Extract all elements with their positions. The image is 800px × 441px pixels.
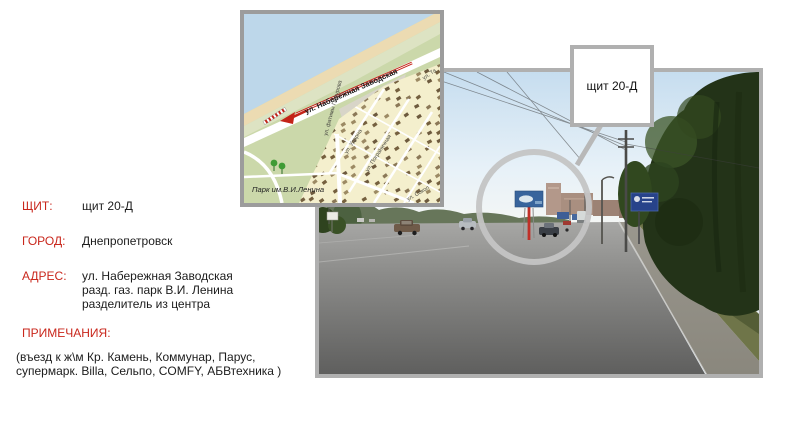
shield-label: ЩИТ: bbox=[22, 199, 53, 213]
address-line-2: разд. газ. парк В.И. Ленина bbox=[82, 283, 233, 297]
callout-label: щит 20-Д bbox=[587, 79, 638, 93]
shield-value: щит 20-Д bbox=[82, 199, 133, 213]
map-inset: ул. Набережная Заводская Парк им.В.И.Лен… bbox=[240, 10, 444, 207]
callout-box: щит 20-Д bbox=[570, 45, 654, 127]
address-line-1: ул. Набережная Заводская bbox=[82, 269, 233, 283]
notes-line-2: супермарк. Billa, Сельпо, COMFY, АБВтехн… bbox=[16, 364, 281, 378]
address-line-3: разделитель из центра bbox=[82, 297, 210, 311]
map-graphic: ул. Набережная Заводская Парк им.В.И.Лен… bbox=[244, 14, 440, 203]
map-park-label: Парк им.В.И.Ленина bbox=[252, 185, 324, 194]
city-label: ГОРОД: bbox=[22, 234, 65, 248]
page: ЩИТ: щит 20-Д ГОРОД: Днепропетровск АДРЕ… bbox=[0, 0, 800, 441]
billboard-highlight-circle bbox=[476, 149, 592, 265]
notes-line-1: (въезд к ж\м Кр. Камень, Коммунар, Парус… bbox=[16, 350, 255, 364]
address-label: АДРЕС: bbox=[22, 269, 67, 283]
city-value: Днепропетровск bbox=[82, 234, 172, 248]
notes-label: ПРИМЕЧАНИЯ: bbox=[22, 326, 111, 340]
